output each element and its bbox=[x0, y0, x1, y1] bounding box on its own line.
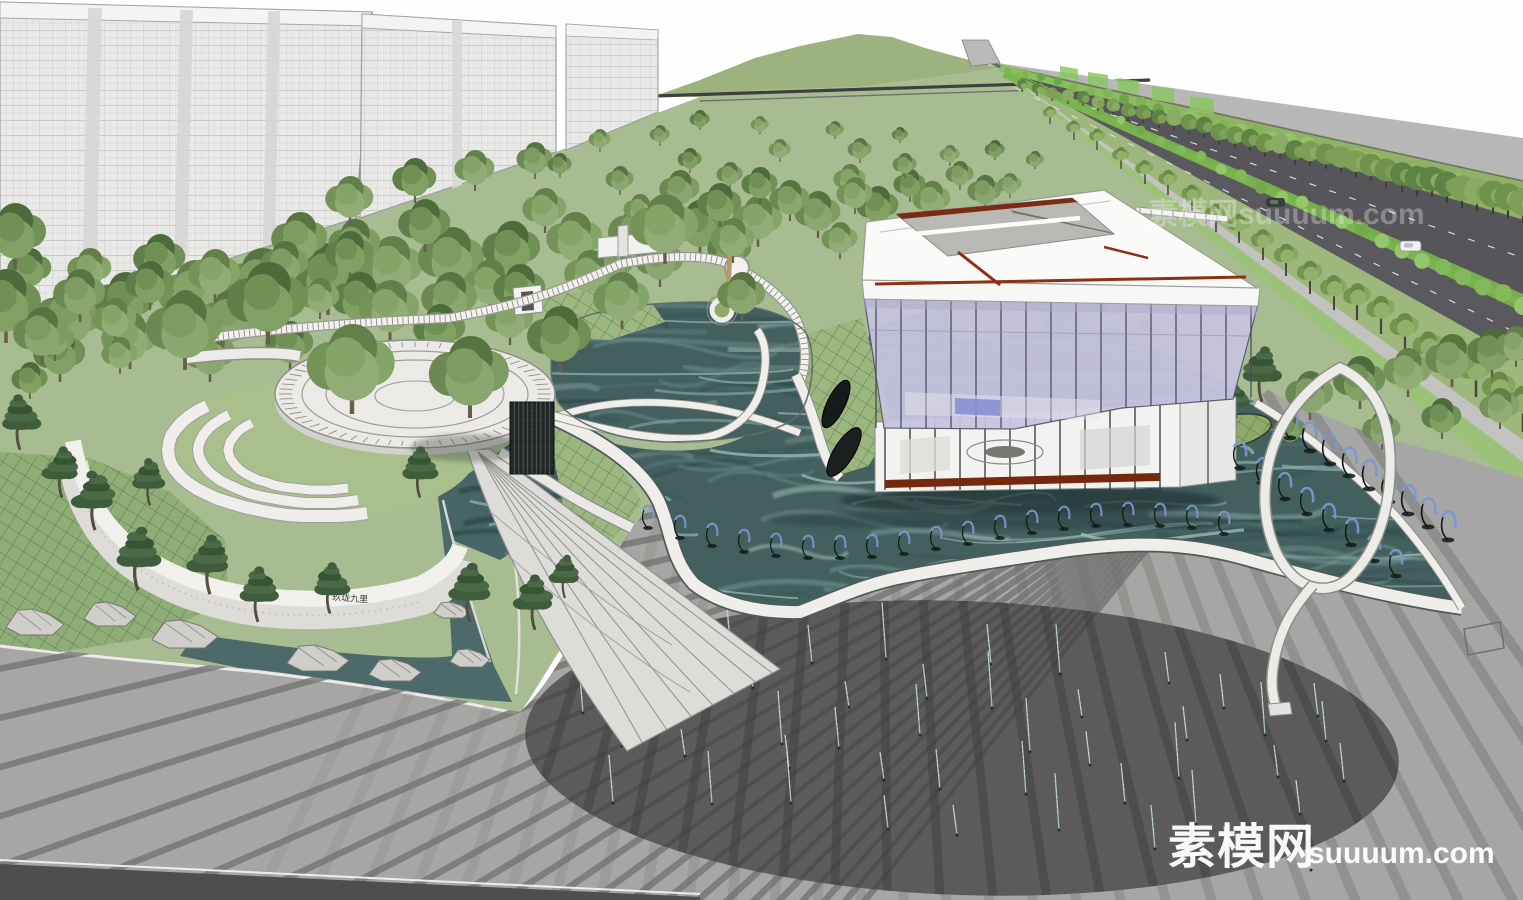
svg-text:素模网suuuum.com: 素模网suuuum.com bbox=[1148, 198, 1425, 231]
svg-text:suuuum.com: suuuum.com bbox=[1308, 837, 1495, 870]
svg-text:素模网: 素模网 bbox=[1168, 821, 1315, 874]
